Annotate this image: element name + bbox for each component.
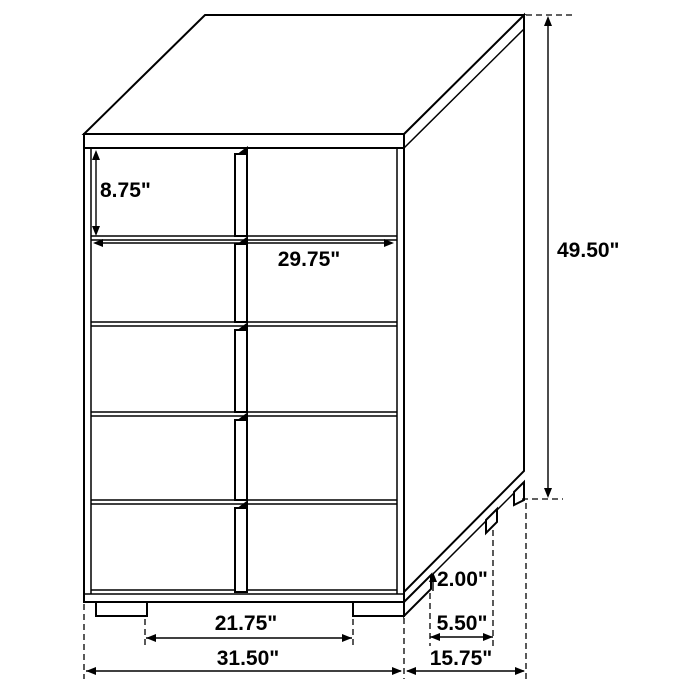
handle-bar [235,154,247,236]
dim-label-overall-height: 49.50" [557,239,620,262]
dim-label-leg-height: 2.00" [437,568,488,591]
chest-dimension-diagram: 8.75" 29.75" 49.50" [0,0,700,700]
drawer-handle-row-3 [235,322,248,412]
dim-label-side-leg-spacing: 5.50" [437,612,488,635]
handle-bar [235,330,247,412]
dim-label-overall-depth: 15.75" [430,647,493,670]
dim-label-front-leg-spacing: 21.75" [215,612,278,635]
handle-bar [235,508,247,592]
dim-label-overall-width: 31.50" [217,647,280,670]
dim-leg-height: 2.00" [429,568,488,591]
chest [84,15,524,616]
front-left-leg [96,602,147,616]
dim-label-top-drawer-height: 8.75" [100,179,151,202]
front-right-leg [353,602,404,616]
drawer-handles [235,146,248,592]
drawer-handle-row-2 [235,236,248,322]
dim-label-drawer-front-width: 29.75" [278,248,341,271]
drawer-handle-row-1 [235,146,248,236]
handle-bar [235,420,247,500]
drawer-handle-row-5 [235,500,248,592]
drawer-handle-row-4 [235,412,248,500]
dimension-drawing: 8.75" 29.75" 49.50" [0,0,700,700]
handle-bar [235,244,247,322]
